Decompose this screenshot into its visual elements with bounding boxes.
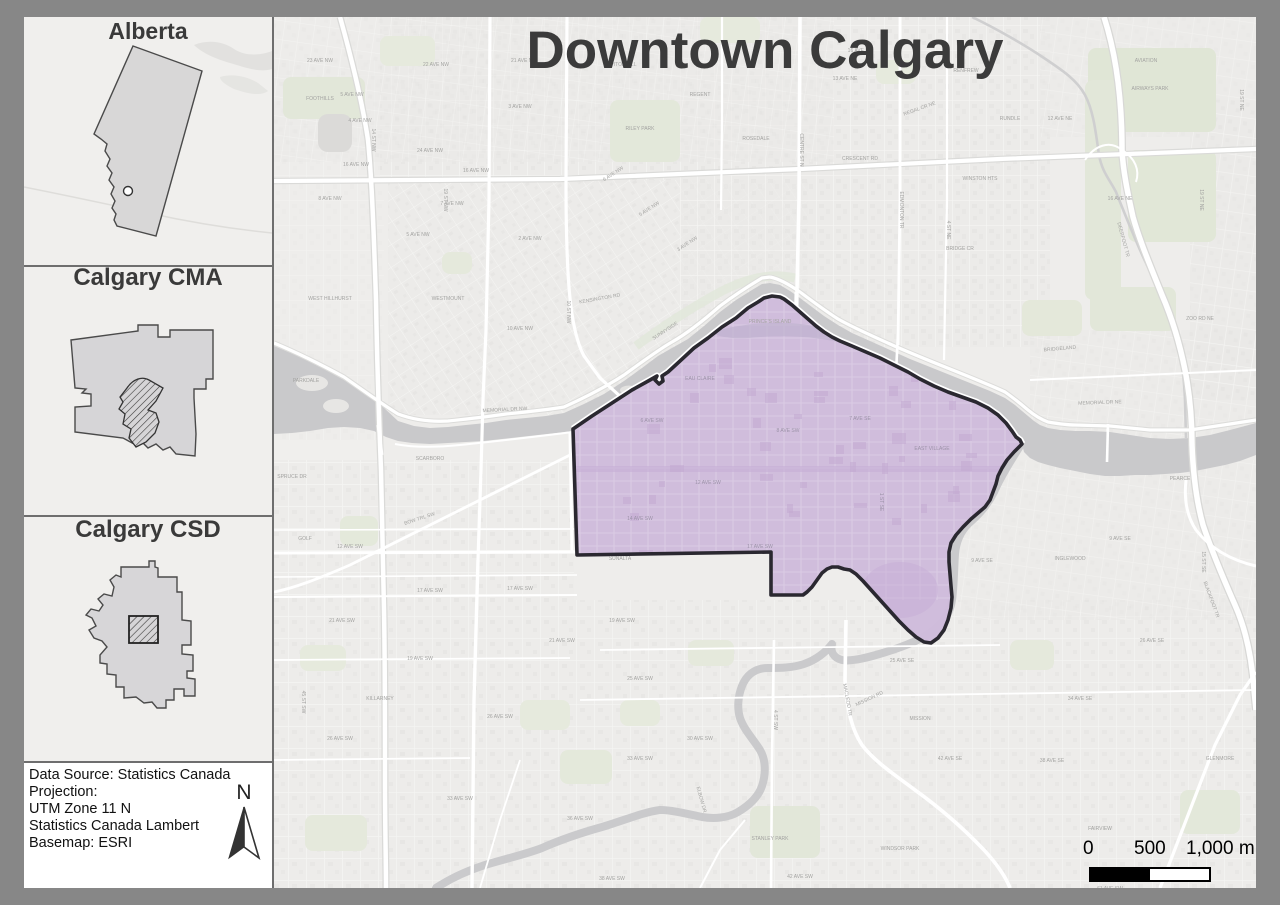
svg-text:25 AVE SW: 25 AVE SW	[627, 676, 653, 682]
svg-text:ROSEDALE: ROSEDALE	[742, 136, 770, 142]
svg-text:45 ST SW: 45 ST SW	[300, 691, 306, 714]
svg-text:9 AVE SE: 9 AVE SE	[971, 558, 993, 564]
svg-text:26 AVE SE: 26 AVE SE	[1140, 638, 1165, 644]
svg-text:30 AVE SW: 30 AVE SW	[687, 736, 713, 742]
svg-text:38 AVE SE: 38 AVE SE	[1040, 758, 1065, 764]
svg-text:26 AVE SW: 26 AVE SW	[327, 736, 353, 742]
svg-text:19 ST NE: 19 ST NE	[1238, 89, 1244, 111]
svg-text:24 AVE NW: 24 AVE NW	[417, 148, 443, 154]
svg-text:ZOO RD NE: ZOO RD NE	[1186, 316, 1214, 322]
svg-text:INGLEWOOD: INGLEWOOD	[1054, 556, 1086, 562]
svg-text:25 AVE SE: 25 AVE SE	[890, 658, 915, 664]
svg-text:STANLEY PARK: STANLEY PARK	[752, 836, 790, 842]
svg-text:36 AVE SW: 36 AVE SW	[567, 816, 593, 822]
svg-text:REGENT: REGENT	[690, 92, 711, 98]
svg-text:16 AVE NE: 16 AVE NE	[1108, 196, 1133, 202]
svg-text:SUNALTA: SUNALTA	[609, 556, 632, 562]
svg-text:FAIRVIEW: FAIRVIEW	[1088, 826, 1112, 832]
svg-text:14 AVE SW: 14 AVE SW	[627, 516, 653, 522]
svg-text:SCARBORO: SCARBORO	[416, 456, 445, 462]
svg-text:38 AVE SW: 38 AVE SW	[599, 876, 625, 882]
svg-text:BRIDGE CR: BRIDGE CR	[946, 246, 974, 252]
svg-text:7 AVE SE: 7 AVE SE	[849, 416, 871, 422]
svg-text:10 ST NW: 10 ST NW	[565, 301, 571, 324]
svg-text:17 AVE SW: 17 AVE SW	[417, 588, 443, 594]
svg-text:8 AVE NW: 8 AVE NW	[318, 196, 342, 202]
svg-text:19 ST NE: 19 ST NE	[1198, 189, 1204, 211]
svg-text:17 AVE SW: 17 AVE SW	[747, 544, 773, 550]
svg-text:5 AVE NW: 5 AVE NW	[406, 232, 430, 238]
svg-text:WINDSOR PARK: WINDSOR PARK	[881, 846, 920, 852]
svg-text:MISSION: MISSION	[909, 716, 931, 722]
svg-text:6 AVE SW: 6 AVE SW	[641, 418, 664, 424]
svg-text:FOOTHILLS: FOOTHILLS	[306, 96, 334, 102]
svg-text:17 AVE SW: 17 AVE SW	[507, 586, 533, 592]
svg-text:CRESCENT RD: CRESCENT RD	[842, 156, 878, 162]
svg-text:PEARCE: PEARCE	[1170, 476, 1191, 482]
svg-text:42 AVE SW: 42 AVE SW	[787, 874, 813, 880]
svg-text:WEST HILLHURST: WEST HILLHURST	[308, 296, 352, 302]
svg-text:14 ST NW: 14 ST NW	[370, 129, 376, 152]
svg-text:EAST VILLAGE: EAST VILLAGE	[914, 446, 950, 452]
svg-text:N: N	[236, 781, 251, 804]
svg-text:19 ST NW: 19 ST NW	[442, 189, 448, 212]
svg-text:RILEY PARK: RILEY PARK	[626, 126, 656, 132]
svg-text:33 AVE SW: 33 AVE SW	[447, 796, 473, 802]
svg-text:2 AVE NW: 2 AVE NW	[518, 236, 542, 242]
svg-text:4 ST NE: 4 ST NE	[945, 221, 951, 240]
svg-text:KILLARNEY: KILLARNEY	[366, 696, 394, 702]
svg-text:GOLF: GOLF	[298, 536, 312, 542]
svg-text:19 AVE SW: 19 AVE SW	[407, 656, 433, 662]
svg-text:19 AVE SW: 19 AVE SW	[609, 618, 635, 624]
svg-text:34 AVE SE: 34 AVE SE	[1068, 696, 1093, 702]
svg-text:SPRUCE DR: SPRUCE DR	[277, 474, 307, 480]
svg-text:3 AVE NW: 3 AVE NW	[508, 104, 532, 110]
svg-text:12 AVE NE: 12 AVE NE	[1048, 116, 1073, 122]
svg-text:16 AVE NW: 16 AVE NW	[463, 168, 489, 174]
svg-text:15 ST SE: 15 ST SE	[1200, 551, 1206, 573]
svg-text:1 ST SE: 1 ST SE	[878, 493, 884, 512]
svg-text:WINSTON HTS: WINSTON HTS	[963, 176, 999, 182]
svg-text:GLENMORE: GLENMORE	[1206, 756, 1235, 762]
svg-text:4 ST SW: 4 ST SW	[772, 710, 778, 730]
svg-text:EAU CLAIRE: EAU CLAIRE	[685, 376, 715, 382]
svg-text:5 AVE NW: 5 AVE NW	[340, 92, 364, 98]
svg-text:12 AVE SW: 12 AVE SW	[695, 480, 721, 486]
svg-text:21 AVE SW: 21 AVE SW	[329, 618, 355, 624]
svg-text:61 AVE SW: 61 AVE SW	[1097, 886, 1123, 888]
svg-text:RUNDLE: RUNDLE	[1000, 116, 1021, 122]
svg-text:WESTMOUNT: WESTMOUNT	[432, 296, 465, 302]
svg-text:12 AVE SW: 12 AVE SW	[337, 544, 363, 550]
svg-text:26 AVE SW: 26 AVE SW	[487, 714, 513, 720]
svg-text:42 AVE SE: 42 AVE SE	[938, 756, 963, 762]
svg-text:9 AVE SE: 9 AVE SE	[1109, 536, 1131, 542]
svg-text:8 AVE SW: 8 AVE SW	[777, 428, 800, 434]
svg-text:16 AVE NW: 16 AVE NW	[343, 162, 369, 168]
svg-text:CENTRE ST N: CENTRE ST N	[798, 133, 804, 167]
svg-text:PRINCE'S ISLAND: PRINCE'S ISLAND	[749, 319, 792, 325]
svg-text:PARKDALE: PARKDALE	[293, 378, 320, 384]
svg-text:AIRWAYS PARK: AIRWAYS PARK	[1131, 86, 1169, 92]
svg-text:33 AVE SW: 33 AVE SW	[627, 756, 653, 762]
svg-text:4 AVE NW: 4 AVE NW	[348, 118, 372, 124]
svg-text:10 AVE NW: 10 AVE NW	[507, 326, 533, 332]
svg-text:21 AVE SW: 21 AVE SW	[549, 638, 575, 644]
svg-text:EDMONTON TR: EDMONTON TR	[898, 191, 904, 228]
